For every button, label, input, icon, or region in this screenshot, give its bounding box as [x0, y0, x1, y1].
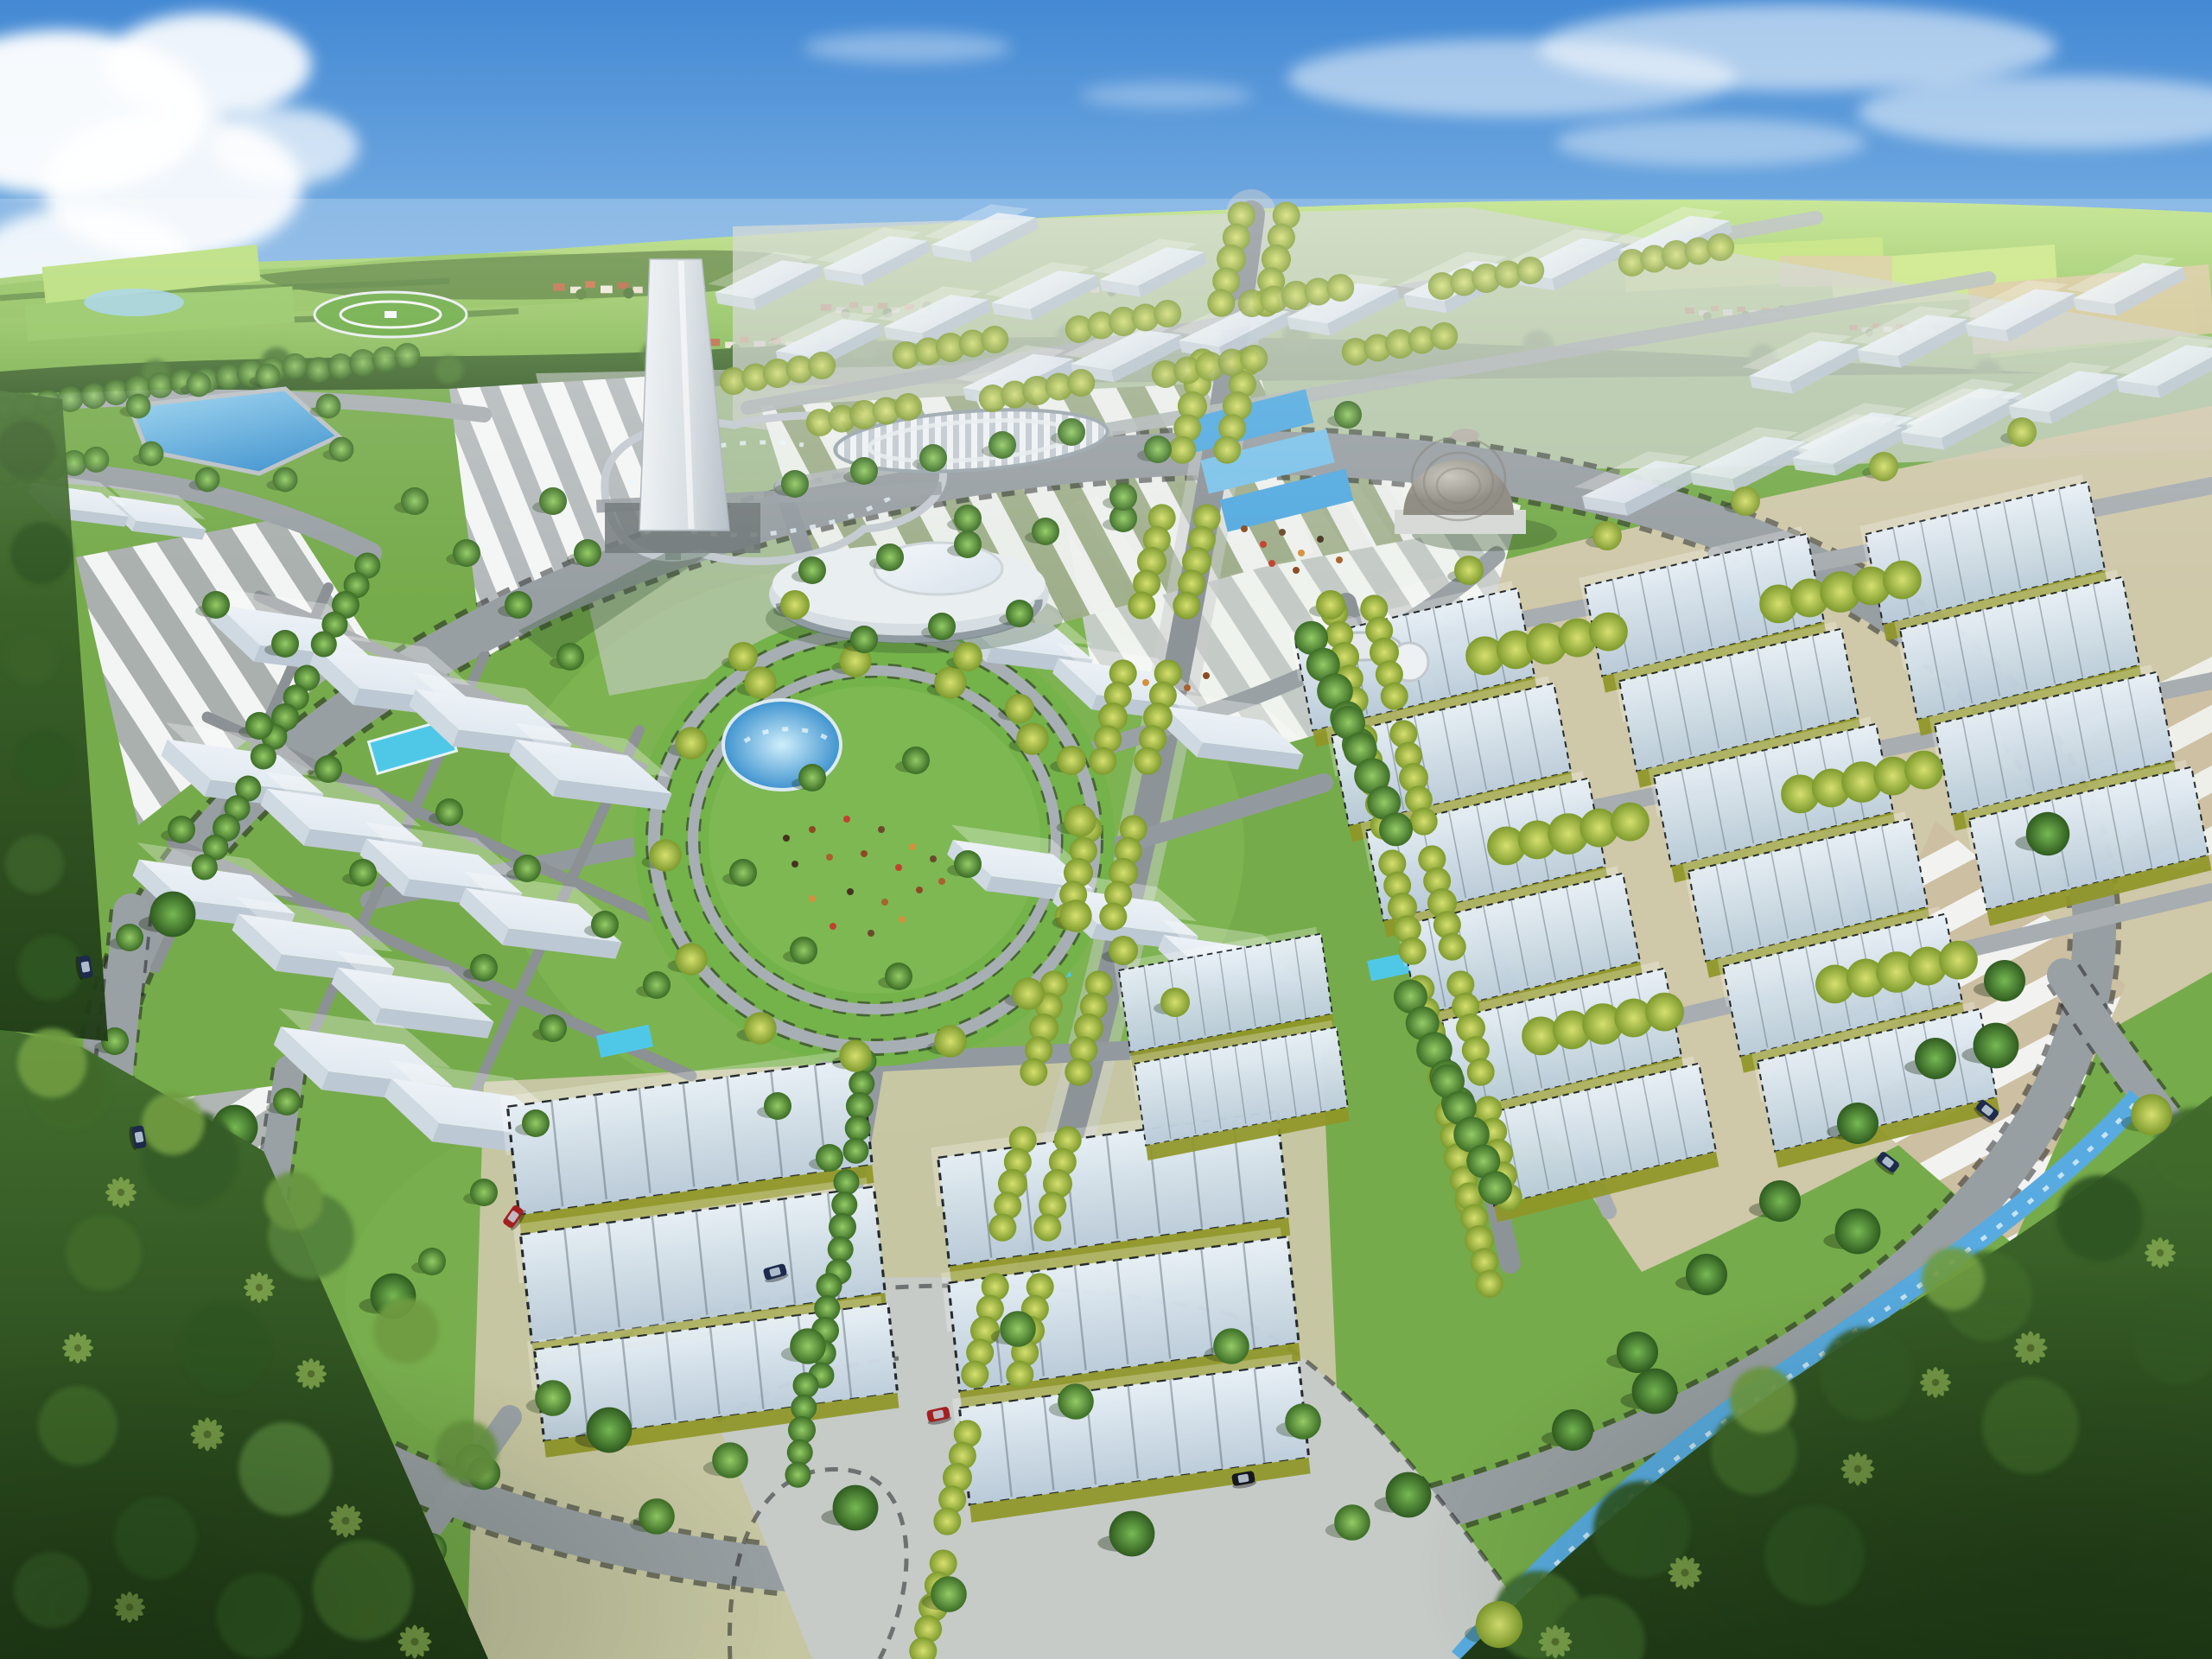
- rendering-canvas: [0, 0, 2212, 1659]
- rendering-stage: [0, 0, 2212, 1659]
- distance-haze: [0, 199, 2212, 605]
